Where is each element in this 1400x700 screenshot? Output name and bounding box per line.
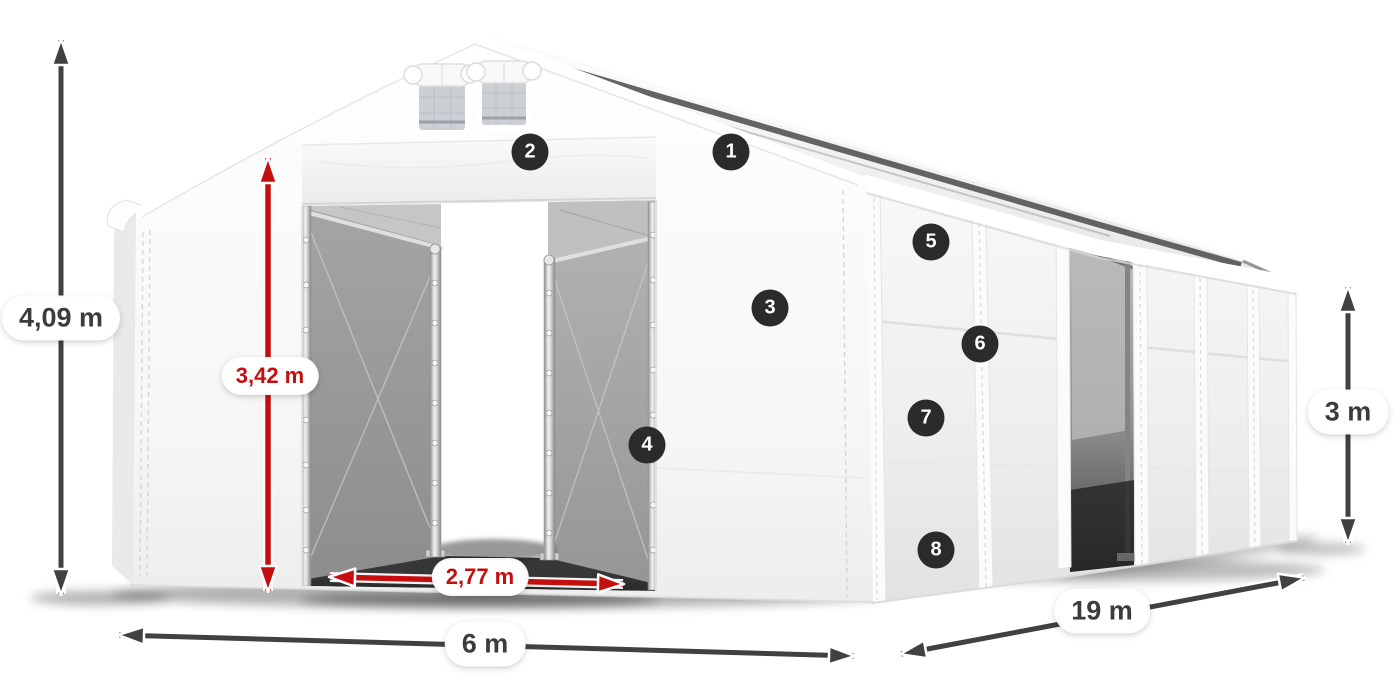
marker-badge-1: 1 [713, 134, 750, 171]
marker-badge-8: 8 [918, 532, 955, 569]
marker-badge-2: 2 [512, 134, 549, 171]
marker-badge-7: 7 [908, 400, 945, 437]
entrance-height-label: 3,42 m [224, 359, 317, 393]
tent-dimensions-diagram: 4,09 m 3,42 m 2,77 m 6 m 19 m 3 m 1 2 3 … [0, 0, 1400, 700]
side-door-opening [1069, 241, 1141, 572]
total-height-label: 4,09 m [4, 298, 118, 339]
entrance-width-label: 2,77 m [434, 560, 527, 594]
length-label: 19 m [1056, 591, 1148, 632]
marker-badge-6: 6 [962, 326, 999, 363]
entrance-header [302, 137, 656, 206]
width-label: 6 m [447, 624, 524, 665]
marker-badge-4: 4 [629, 427, 666, 464]
tent-illustration [0, 0, 1400, 700]
side-height-label: 3 m [1310, 392, 1387, 433]
marker-badge-3: 3 [752, 290, 789, 327]
marker-badge-5: 5 [913, 224, 950, 261]
entrance-interior [301, 200, 658, 591]
